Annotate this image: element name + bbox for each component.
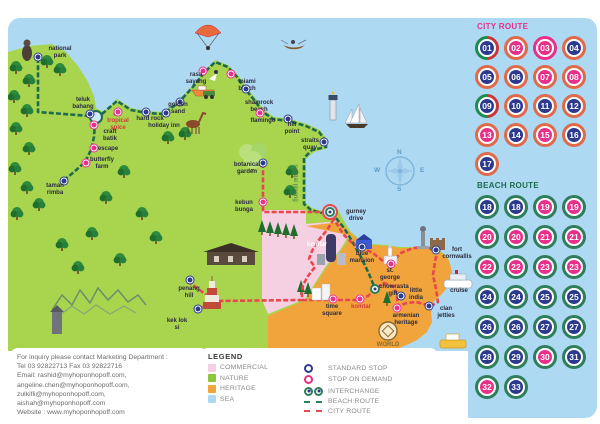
- contact-line: zulkifli@myhoponhopoff.com,: [17, 390, 201, 399]
- fort-cornwallis-icon: [430, 238, 445, 250]
- legend-area-label: COMMERCIAL: [220, 364, 268, 371]
- contact-line: aishah@myhoponhopoff.com: [17, 399, 201, 408]
- legend-area-row: COMMERCIAL: [208, 364, 304, 372]
- legend-swatch: [208, 385, 216, 393]
- demand-symbol-icon: [304, 375, 324, 384]
- legend-area-label: SEA: [220, 396, 234, 403]
- hop-on-hop-off-map-poster: national parkteluk bahangcraft batiktrop…: [0, 0, 600, 424]
- butterfly-icon-2: [117, 112, 120, 115]
- gurney-roundabout: [323, 205, 337, 219]
- city-route-title: CITY ROUTE: [477, 22, 528, 31]
- butterfly-icon: [113, 112, 116, 115]
- contact-line: For inquiry please contact Marketing Dep…: [17, 353, 201, 362]
- lighthouse-icon: [329, 92, 338, 121]
- legend-area-row: HERITAGE: [208, 385, 304, 393]
- legend-area-row: SEA: [208, 395, 304, 403]
- legend-area-swatches: COMMERCIALNATUREHERITAGESEA: [208, 361, 304, 415]
- contact-line: angeline.chen@myhoponhopoff.com,: [17, 381, 201, 390]
- legend-symbol-label: CITY ROUTE: [328, 408, 371, 415]
- legend-symbol-row: STOP ON DEMAND: [304, 375, 393, 384]
- beach-symbol-icon: [304, 401, 324, 403]
- standard-symbol-icon: [304, 364, 324, 373]
- contact-line: Website : www.myhoponhopoff.com: [17, 408, 201, 417]
- contact-line: Email: rashid@myhoponhopoff.com,: [17, 371, 201, 380]
- contact-info-box: For inquiry please contact Marketing Dep…: [10, 348, 208, 420]
- legend-symbol-row: CITY ROUTE: [304, 408, 393, 415]
- legend-area-label: NATURE: [220, 375, 249, 382]
- legend-swatch: [208, 364, 216, 372]
- contact-line: Tel 03 92822713 Fax 03 92822716: [17, 362, 201, 371]
- legend-symbol-label: STANDARD STOP: [328, 365, 388, 372]
- legend-symbol-row: BEACH ROUTE: [304, 398, 393, 405]
- legend-title: LEGEND: [208, 352, 430, 361]
- compass-rose: [386, 157, 414, 185]
- beach-route-title: BEACH ROUTE: [477, 181, 539, 190]
- legend-area-row: NATURE: [208, 374, 304, 382]
- world-heritage-emblem: [379, 322, 397, 340]
- legend-symbol-row: INTERCHANGE: [304, 387, 393, 396]
- legend-swatch: [208, 374, 216, 382]
- legend: LEGEND COMMERCIALNATUREHERITAGESEA STAND…: [200, 348, 438, 420]
- legend-swatch: [208, 395, 216, 403]
- city-symbol-icon: [304, 410, 324, 412]
- teluk-bahang-roundabout: [90, 111, 102, 123]
- interchange-symbol-icon: [304, 387, 324, 396]
- legend-symbol-label: INTERCHANGE: [328, 388, 380, 395]
- legend-symbol-label: STOP ON DEMAND: [328, 376, 393, 383]
- legend-symbol-label: BEACH ROUTE: [328, 398, 379, 405]
- legend-symbol-row: STANDARD STOP: [304, 364, 393, 373]
- legend-area-label: HERITAGE: [220, 385, 256, 392]
- legend-symbols: STANDARD STOPSTOP ON DEMANDINTERCHANGEBE…: [304, 361, 393, 415]
